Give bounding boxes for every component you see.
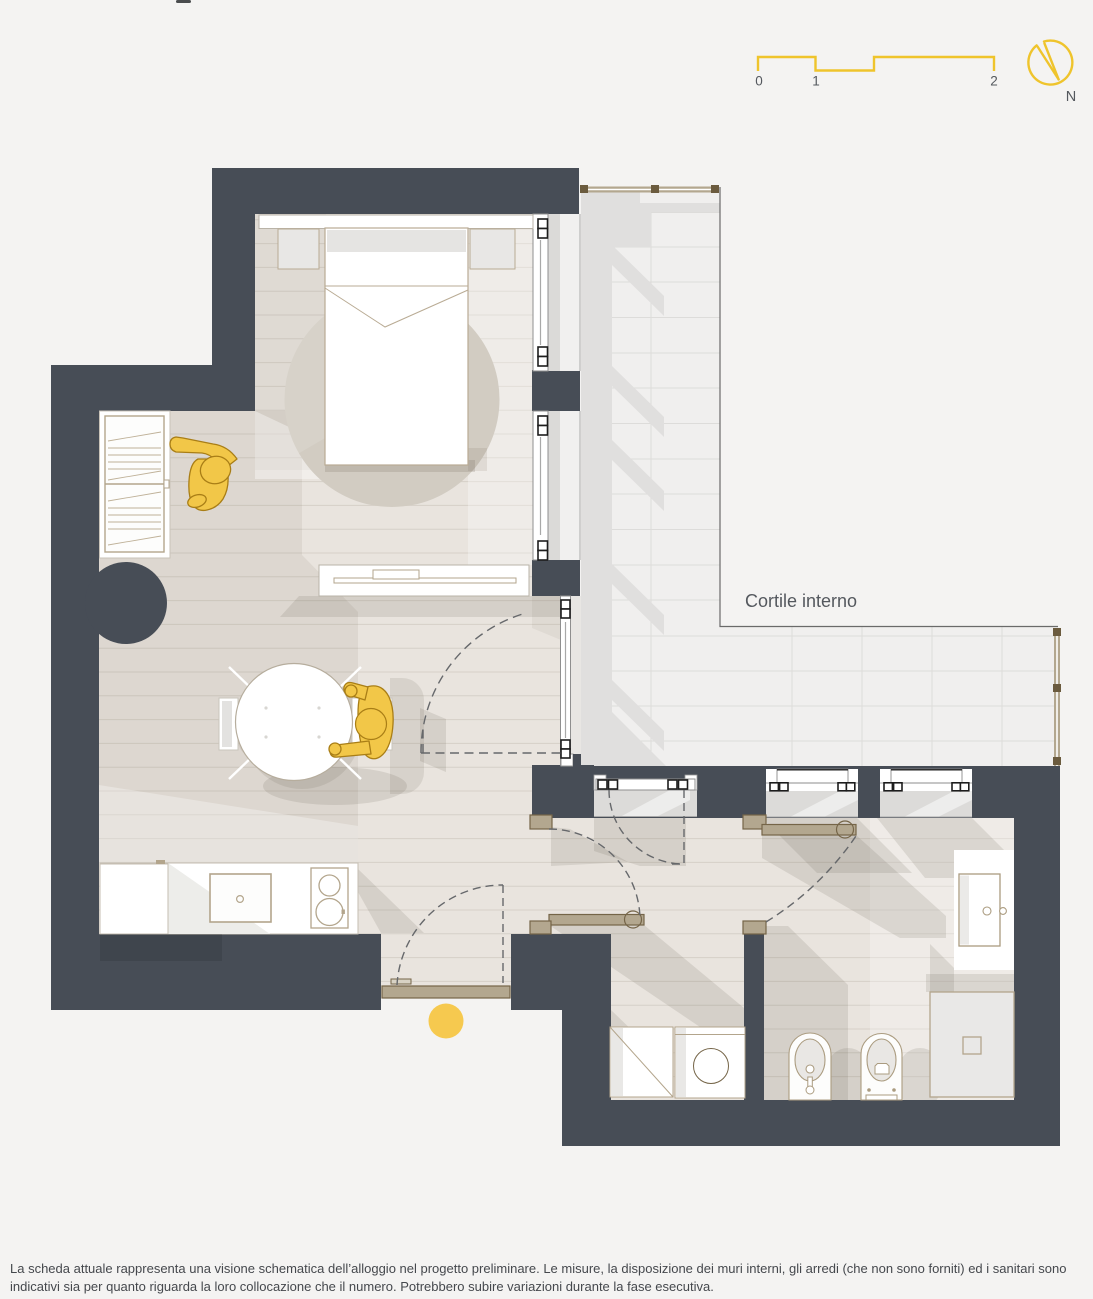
svg-text:Cortile interno: Cortile interno (745, 591, 857, 611)
svg-text:0: 0 (755, 74, 763, 89)
svg-text:1: 1 (812, 74, 820, 89)
svg-text:N: N (1066, 89, 1076, 105)
svg-text:2: 2 (990, 74, 998, 89)
svg-text:La scheda attuale rappresenta: La scheda attuale rappresenta una vision… (10, 1261, 1066, 1276)
svg-text:indicativi sia per quanto rigu: indicativi sia per quanto riguarda la lo… (10, 1279, 714, 1294)
